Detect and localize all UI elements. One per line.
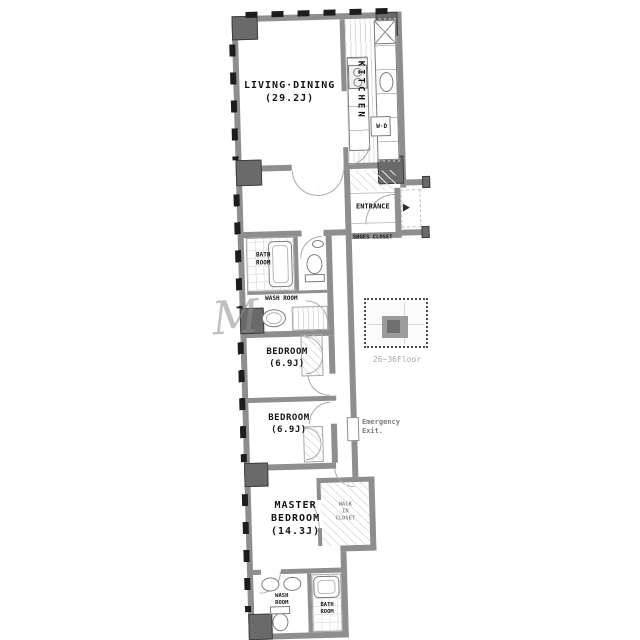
living-dining-name: LIVING·DINING <box>234 79 346 92</box>
living-dining-size: (29.2J) <box>234 92 346 105</box>
wash-room2-line1: WASH <box>256 593 308 600</box>
wash-room2-label: WASH ROOM <box>256 593 308 607</box>
toilet-bowl <box>306 254 323 274</box>
toilet2-bowl <box>272 613 288 631</box>
wic-line2: IN <box>321 509 369 516</box>
wic-line1: WALK <box>321 501 369 508</box>
toilet-corner-sink <box>312 240 324 248</box>
wall-stub-lower-tip <box>421 226 429 238</box>
refrigerator <box>374 20 397 45</box>
column-left-mid3 <box>244 463 269 488</box>
shoes-closet-label: SHOES CLOSET <box>346 234 400 241</box>
bedroom2-label: BEDROOM (6.9J) <box>247 413 331 436</box>
emergency-exit-line2: Exit. <box>362 427 400 436</box>
emergency-exit-label: Emergency Exit. <box>362 418 400 437</box>
living-door-arc-left <box>292 170 319 197</box>
wall-bedroom-right-a <box>328 336 335 374</box>
bedroom1-label: BEDROOM (6.9J) <box>245 347 329 370</box>
wic-line3: CLOSET <box>321 516 369 523</box>
living-door-arc-right <box>318 169 345 196</box>
watermark: M <box>210 288 261 345</box>
floor-plan: W·D <box>0 0 640 640</box>
washer-dryer-box: W·D <box>370 116 391 137</box>
washroom2-basin-2 <box>283 577 301 591</box>
bath-room-line2: ROOM <box>248 259 278 267</box>
washer-dryer-label: W·D <box>372 123 392 131</box>
key-plan-unit-core <box>387 320 400 333</box>
linen-closet <box>292 306 329 331</box>
wall-bedroom-right-b <box>331 424 338 463</box>
bedroom2-size: (6.9J) <box>247 425 331 437</box>
kitchen-label: KITCHEN <box>354 61 366 120</box>
wall-stub-upper-tip <box>422 176 430 188</box>
column-left-mid1 <box>236 160 263 187</box>
bath-room-line1: BATH <box>248 252 278 260</box>
washroom2-basin-1 <box>261 577 279 591</box>
key-plan-floor-label: 26~36Floor <box>358 355 436 364</box>
bedroom1-name: BEDROOM <box>245 347 329 359</box>
wash-room-label: WASH ROOM <box>251 295 311 303</box>
bedroom1-door-arc <box>308 374 331 397</box>
bath-room2-label: BATH ROOM <box>311 602 343 616</box>
emergency-exit-line1: Emergency <box>362 418 400 427</box>
emergency-exit-door <box>347 417 360 441</box>
bedroom1-size: (6.9J) <box>245 359 329 371</box>
bedroom2-name: BEDROOM <box>247 413 331 425</box>
entrance-label: ENTRANCE <box>349 202 397 211</box>
bath-room2-line1: BATH <box>311 602 343 609</box>
column-top-left <box>231 16 258 41</box>
bathtub2-inner <box>317 580 335 594</box>
wash-room2-line2: ROOM <box>256 600 308 607</box>
shoes-in-closet-floor <box>350 170 397 191</box>
living-dining-label: LIVING·DINING (29.2J) <box>234 79 346 105</box>
bath-room2-line2: ROOM <box>311 609 343 616</box>
master-bedroom-size: (14.3J) <box>250 525 342 538</box>
floor-plan-canvas: W·D <box>0 0 640 640</box>
toilet-tank <box>305 274 325 283</box>
bath-room-label: BATH ROOM <box>248 252 278 268</box>
key-plan-building-outline <box>364 298 428 348</box>
entry-arrow-icon <box>403 203 410 211</box>
walk-in-closet-label: WALK IN CLOSET <box>321 501 369 522</box>
column-bottom-left <box>248 613 273 640</box>
